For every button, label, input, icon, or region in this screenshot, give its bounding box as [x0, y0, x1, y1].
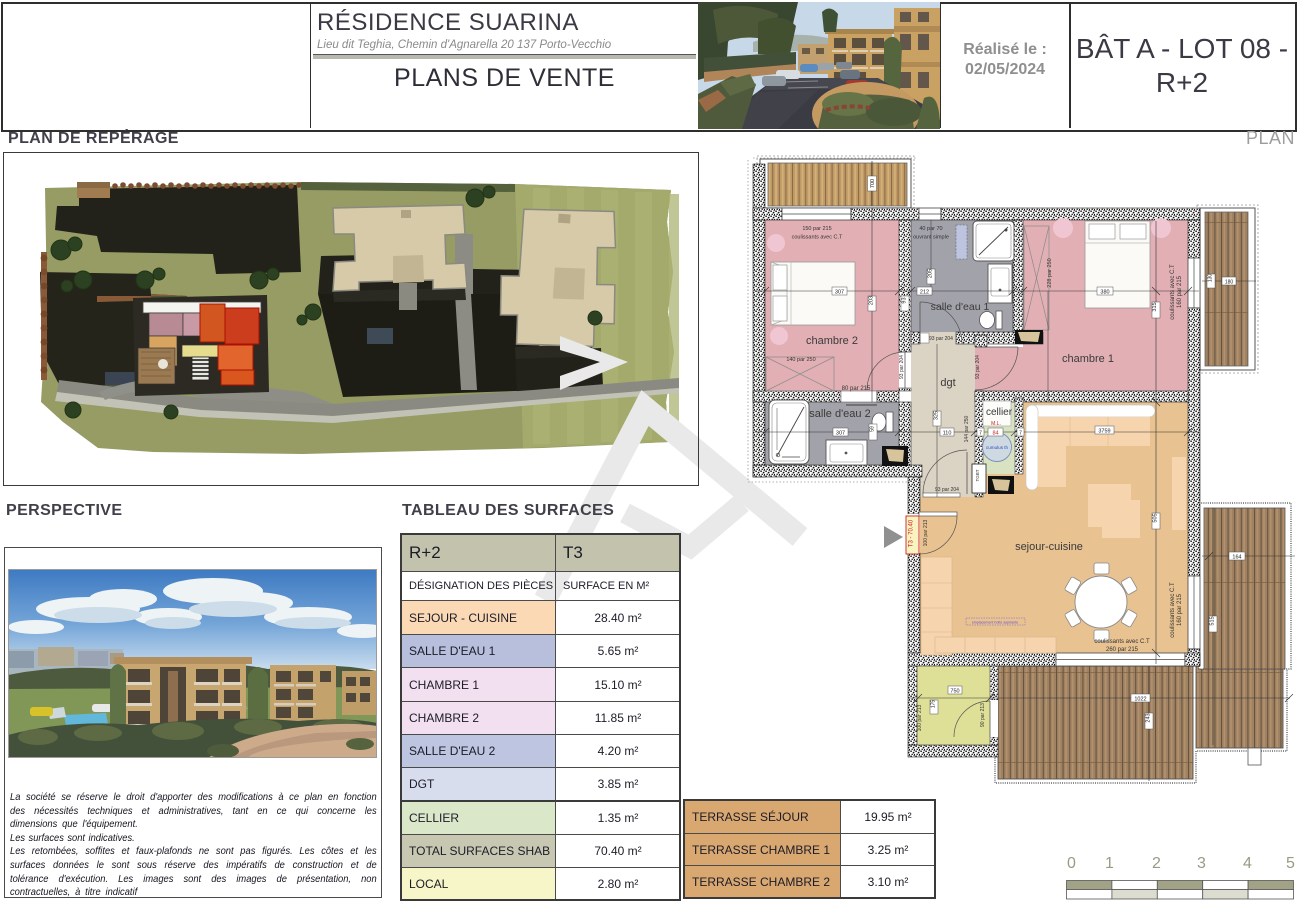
svg-text:380: 380 [1100, 290, 1109, 296]
svg-text:100 par 213: 100 par 213 [923, 519, 929, 546]
svg-text:243: 243 [1146, 713, 1152, 722]
svg-text:315: 315 [1152, 302, 1158, 311]
svg-text:93 par 204: 93 par 204 [929, 336, 953, 342]
svg-text:coulissants avec C.T: coulissants avec C.T [792, 235, 843, 241]
svg-text:coulissants avec C.T: coulissants avec C.T [1094, 639, 1150, 645]
svg-text:160 par 215: 160 par 215 [1177, 275, 1183, 308]
svg-text:80 par 215: 80 par 215 [842, 386, 871, 392]
svg-text:3759: 3759 [1098, 429, 1110, 435]
svg-text:sejour-cuisine: sejour-cuisine [1015, 541, 1083, 553]
svg-text:203: 203 [869, 296, 875, 305]
svg-text:T3 - 70.40: T3 - 70.40 [909, 519, 915, 547]
svg-text:144 par 250: 144 par 250 [964, 415, 970, 442]
svg-text:307: 307 [836, 431, 845, 437]
svg-text:59: 59 [870, 426, 876, 432]
svg-text:84: 84 [992, 431, 998, 437]
svg-text:dgt: dgt [940, 377, 955, 389]
svg-text:228 par 250: 228 par 250 [1047, 258, 1053, 287]
svg-text:750: 750 [950, 689, 959, 695]
svg-text:cumulus th: cumulus th [986, 445, 1009, 450]
svg-text:40 par 70: 40 par 70 [919, 226, 942, 232]
svg-text:205: 205 [928, 269, 934, 278]
svg-text:150 par 215: 150 par 215 [802, 226, 831, 232]
svg-text:1022: 1022 [1134, 697, 1146, 703]
svg-text:180: 180 [1225, 280, 1234, 286]
svg-text:260 par 215: 260 par 215 [1106, 647, 1139, 653]
svg-text:700: 700 [870, 179, 876, 188]
svg-text:175: 175 [931, 700, 937, 709]
svg-text:7: 7 [1019, 431, 1022, 437]
svg-text:93 par 204: 93 par 204 [975, 355, 981, 379]
svg-text:93 par 204: 93 par 204 [935, 487, 959, 493]
svg-text:ouvrant simple: ouvrant simple [913, 235, 949, 241]
svg-text:TGBT: TGBT [975, 469, 980, 481]
svg-text:130: 130 [1208, 274, 1214, 283]
svg-text:coulissants avec C.T: coulissants avec C.T [1170, 582, 1176, 638]
svg-text:emplacement hotte aspirante: emplacement hotte aspirante [972, 621, 1018, 625]
svg-text:212: 212 [920, 290, 929, 296]
svg-text:515: 515 [1210, 616, 1216, 625]
svg-text:chambre 2: chambre 2 [806, 335, 858, 347]
svg-text:90 par 213: 90 par 213 [980, 703, 986, 727]
svg-text:salle d'eau 1: salle d'eau 1 [931, 301, 990, 313]
svg-text:93: 93 [902, 297, 908, 303]
svg-text:160 par 215: 160 par 215 [1177, 593, 1183, 626]
svg-text:307: 307 [835, 290, 844, 296]
svg-text:coulissants avec C.T: coulissants avec C.T [1170, 264, 1176, 320]
svg-text:140 par 250: 140 par 250 [786, 357, 815, 363]
svg-text:110: 110 [943, 431, 952, 437]
svg-text:7: 7 [979, 431, 982, 437]
svg-text:100 par 213: 100 par 213 [917, 704, 923, 731]
svg-text:chambre 1: chambre 1 [1062, 353, 1114, 365]
svg-text:325: 325 [934, 411, 940, 420]
svg-text:M.L.: M.L. [991, 421, 1001, 427]
svg-text:cellier: cellier [986, 407, 1013, 418]
svg-text:505: 505 [1153, 513, 1159, 522]
svg-text:salle d'eau 2: salle d'eau 2 [809, 408, 870, 420]
svg-text:93 par 204: 93 par 204 [899, 355, 905, 379]
svg-text:164: 164 [1232, 555, 1241, 561]
